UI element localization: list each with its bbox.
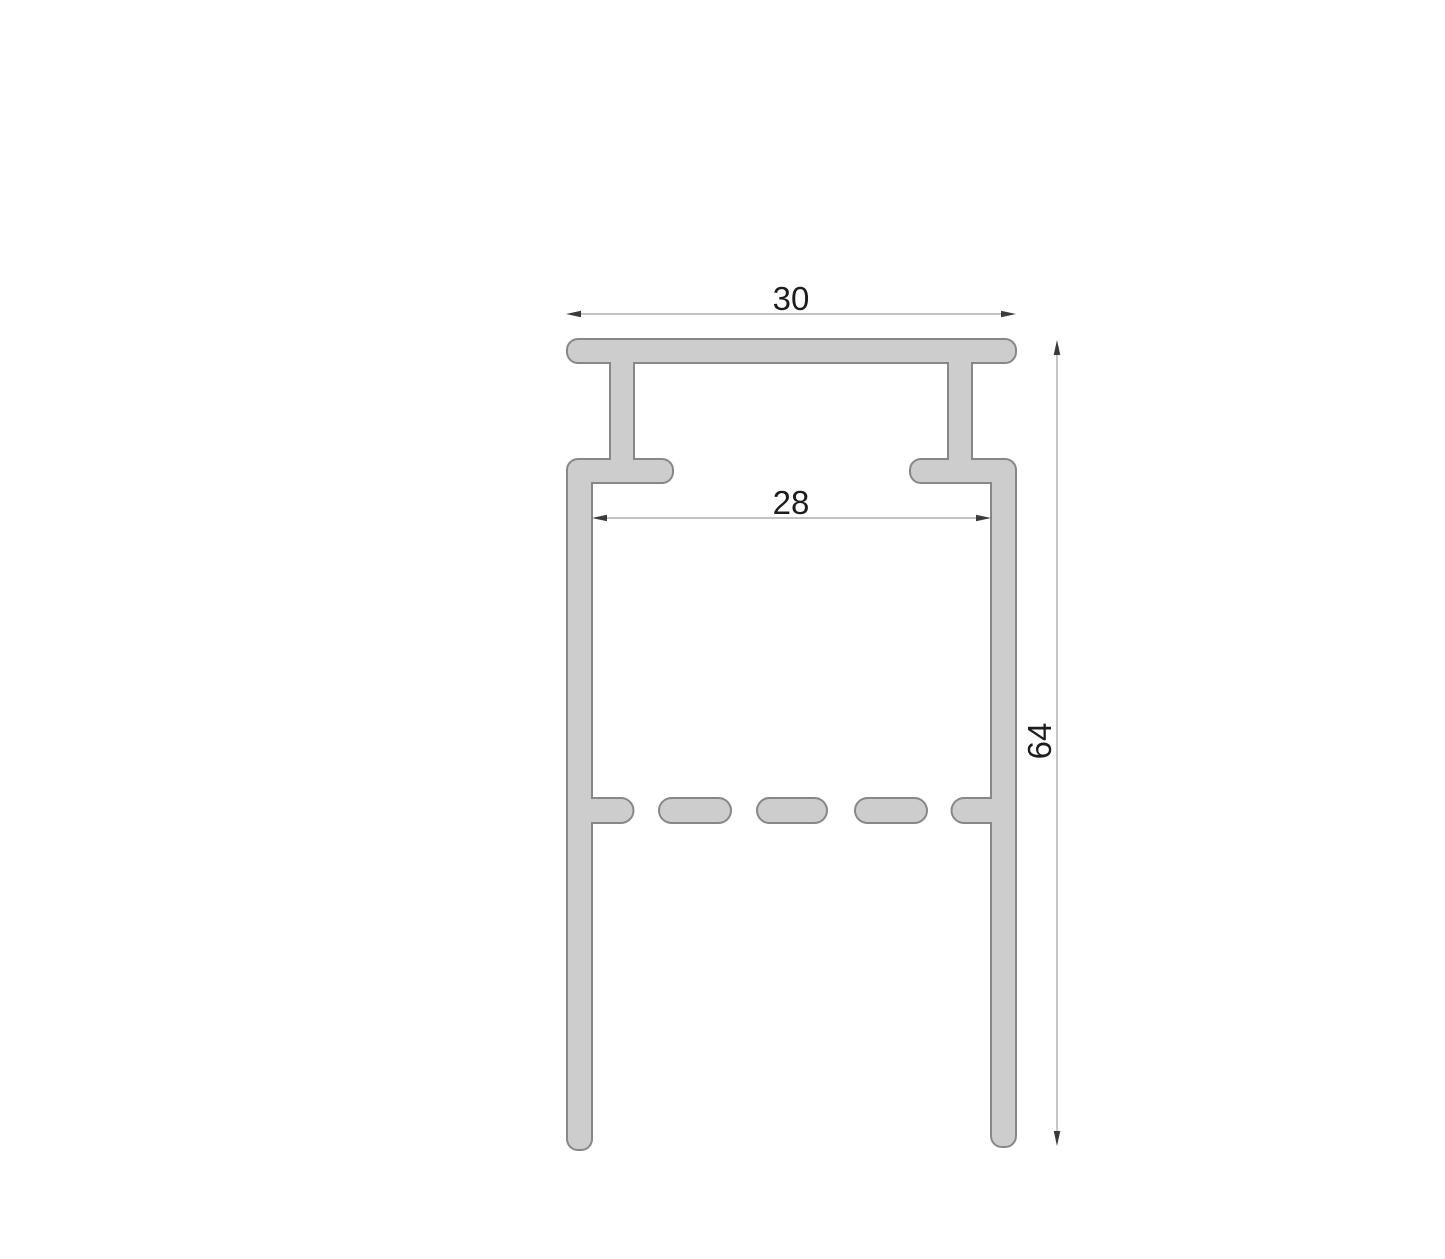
technical-drawing-canvas: 30 28 64 (0, 0, 1445, 1259)
dimension-inner-opening: 28 (592, 484, 991, 521)
arrowhead-left-icon (592, 515, 607, 522)
arrowhead-right-icon (1001, 311, 1016, 318)
dim-label-overall-height: 64 (1021, 723, 1058, 760)
dashed-segment-1 (659, 798, 731, 823)
dimension-overall-height: 64 (1021, 340, 1060, 1146)
dashed-segment-3 (855, 798, 927, 823)
dim-label-inner-opening: 28 (773, 484, 810, 521)
profile-body (567, 339, 1016, 1150)
dashed-segment-2 (757, 798, 827, 823)
arrowhead-down-icon (1054, 1131, 1061, 1146)
arrowhead-right-icon (976, 515, 991, 522)
profile-shapes (567, 339, 1016, 1150)
dimension-top-width: 30 (566, 280, 1016, 317)
arrowhead-left-icon (566, 311, 581, 318)
arrowhead-up-icon (1054, 340, 1061, 355)
dim-label-top-width: 30 (773, 280, 810, 317)
drawing-page: 30 28 64 (0, 0, 1445, 1259)
